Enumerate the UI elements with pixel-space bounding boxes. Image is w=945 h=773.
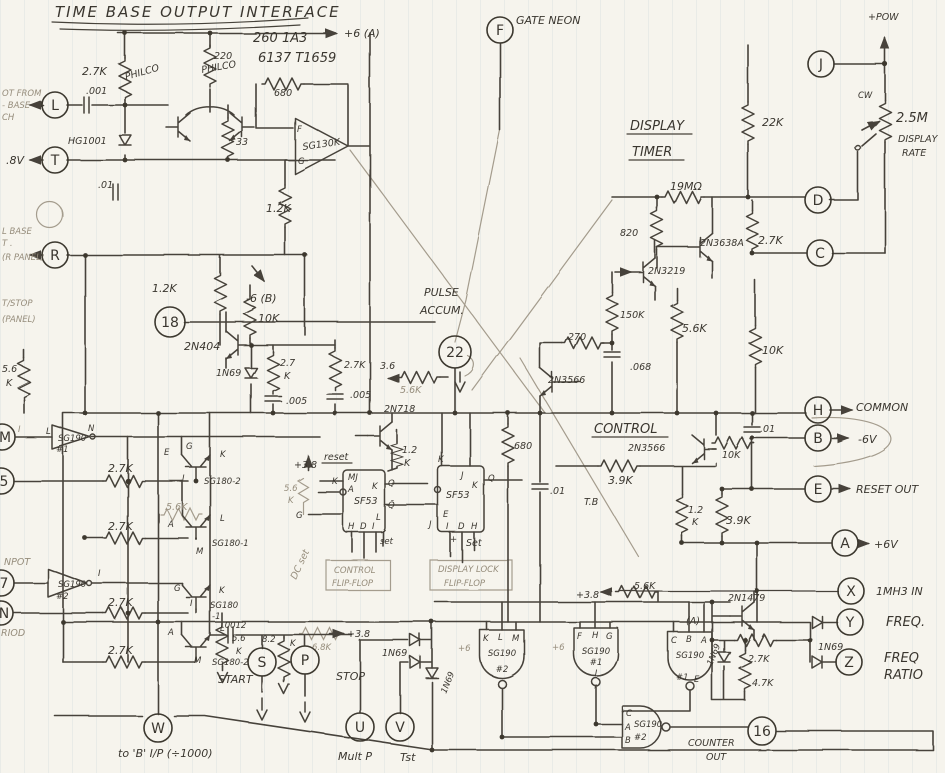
section-control: CONTROL — [594, 422, 657, 437]
terminal-B-label: B — [813, 431, 823, 447]
q-2n404: 2N404 — [184, 340, 220, 353]
gate-neon-label: GATE NEON — [516, 14, 580, 27]
terminal-P: P — [291, 646, 319, 674]
pot-2.5m: 2.5M — [896, 111, 928, 126]
q-2n718: 2N718 — [384, 404, 415, 415]
r-1.2k-b: 1.2K — [152, 282, 177, 295]
terminal-A-label: A — [840, 536, 850, 552]
display-timer-2: TIMER — [632, 145, 672, 160]
note-to-b: to 'B' I/P (÷1000) — [118, 747, 213, 760]
terminal-N: N — [0, 601, 13, 625]
gate1-p6: +6 — [458, 644, 471, 654]
ff1-pin-i: I — [372, 522, 375, 532]
wiring — [14, 33, 933, 750]
tag-a: (A) — [686, 616, 700, 627]
terminal-U-label: U — [355, 720, 365, 736]
gate4-name: SG190 — [634, 720, 662, 730]
amp-pin-g: G — [298, 157, 305, 167]
d-1n69-d: 1N69 — [440, 670, 458, 695]
gate2-name: SG190 — [582, 647, 610, 657]
ff1-pin-qbar: Q̄ — [388, 499, 395, 511]
terminal-M-label: M — [0, 430, 11, 446]
r-2.7k-bt: 2.7K — [748, 654, 770, 665]
pot-cw: CW — [858, 91, 873, 101]
note-npot: NPOT — [4, 557, 31, 568]
terminal-P-label: P — [301, 653, 309, 669]
pin-g: G — [296, 511, 303, 521]
supply-plus6a: +6 (A) — [344, 27, 380, 40]
r-1.2-c: 1.2 — [688, 505, 703, 516]
caption-cff-1: CONTROL — [334, 566, 376, 576]
qa-pin-i: I — [182, 474, 185, 484]
terminal-7: 7 — [0, 570, 14, 596]
inv1-num: #1 — [56, 445, 69, 455]
ff1-pin-mj: MJ — [348, 473, 358, 483]
supply-p38-a: +3.8 — [294, 460, 317, 471]
qc-name: SG180 — [210, 601, 238, 611]
qc-pin-k: K — [219, 586, 226, 596]
note-rpanel-3: (R PANEL) — [2, 253, 44, 263]
ff1-pin-q: Q — [388, 479, 395, 489]
terminal-W: W — [144, 714, 172, 742]
gate4-pin2: A — [624, 723, 631, 733]
terminal-B: B — [805, 425, 831, 451]
ff2-pin-q: Q — [488, 474, 495, 484]
terminal-5: 5 — [0, 468, 14, 494]
label-reset: reset — [324, 452, 350, 463]
io-counter-1: COUNTER — [688, 738, 735, 749]
ff1-pin-d: D — [360, 522, 367, 532]
ff1-pin-a: A — [347, 485, 354, 495]
display-rate-2: RATE — [902, 148, 926, 159]
q-2n3566-b: 2N3566 — [628, 443, 665, 454]
inv1-pin-i: I — [18, 425, 21, 435]
r-3.9k-a: 3.9K — [608, 474, 633, 487]
c-01b: .01 — [760, 424, 775, 435]
r-2.7k-1: 2.7K — [108, 462, 133, 475]
r-5.6-ff1: 5.6 — [284, 484, 298, 494]
io-reset-out: RESET OUT — [856, 483, 919, 496]
io-counter-2: OUT — [706, 752, 727, 763]
r-6.8k: 6.8K — [312, 643, 333, 653]
r-1.2-a: 1.2 — [402, 445, 417, 456]
gate3-pin1: C — [671, 636, 677, 646]
c-001: .001 — [86, 86, 107, 97]
terminal-Y: Y — [837, 609, 863, 635]
r-5.6k-edge1: 5.6 — [2, 364, 17, 375]
r-2.7k-4: 2.7K — [108, 644, 133, 657]
r-1.2-b: K — [404, 458, 411, 469]
r-22k: 22K — [762, 116, 784, 129]
r-5.6k-a: 5.6K — [166, 502, 188, 513]
r-5.6k-b: 5.6K — [634, 581, 656, 592]
supply-pow: +POW — [868, 12, 899, 23]
gate2-pin3: G — [606, 632, 613, 642]
gate3-name: SG190 — [676, 651, 704, 661]
terminal-F-label: F — [496, 23, 504, 39]
gate1-pin3: M — [512, 634, 520, 644]
terminal-X-label: X — [846, 584, 856, 600]
amp-sg130k: SG130K — [302, 137, 342, 153]
v-0.8: .8V — [6, 154, 25, 167]
r-2.7-b2: K — [284, 371, 291, 382]
r-33: 33 — [236, 137, 248, 148]
terminal-V: V — [386, 713, 414, 741]
caption-cff-2: FLIP-FLOP — [332, 579, 374, 589]
terminal-M: M — [0, 424, 15, 450]
note-stop-1: T/STOP — [2, 299, 33, 309]
ff2-pin-d: D — [458, 522, 465, 532]
gate3-num: #1 — [676, 673, 689, 683]
terminal-Z: Z — [836, 649, 862, 675]
terminal-22-label: 22 — [446, 345, 464, 361]
qb-pin-l: L — [220, 514, 225, 524]
r-2.7k-top: 2.7K — [82, 65, 107, 78]
r-270: 270 — [568, 332, 586, 343]
note-rpanel-1: L BASE — [2, 227, 32, 237]
terminal-S: S — [248, 648, 276, 676]
qb-pin-m: M — [196, 547, 204, 557]
ff2-pin-k: K — [438, 455, 445, 465]
terminal-V-label: V — [395, 720, 405, 736]
ff2-pin-i: I — [446, 522, 449, 532]
label-multp: Mult P — [338, 750, 372, 763]
r-2.7k-3: 2.7K — [108, 596, 133, 609]
gate2-p6: +6 — [552, 643, 565, 653]
r-8.2-k: K — [290, 639, 297, 649]
qa-name: SG180-2 — [204, 477, 241, 487]
c-005a: .005 — [286, 396, 307, 407]
r-5.6k-pulse: 5.6K — [400, 385, 422, 396]
terminal-D-label: D — [813, 193, 824, 209]
r-5.6-gnd-1: 5.6 — [232, 634, 246, 644]
note-from-3: CH — [2, 113, 15, 123]
note-period: RIOD — [1, 628, 25, 639]
terminal-16: 16 — [748, 717, 776, 745]
inv1-pin-n: N — [88, 424, 95, 434]
qa-pin-g: G — [186, 442, 193, 452]
note-from-2: - BASE — [2, 101, 31, 111]
gate3-pin3: A — [700, 636, 707, 646]
note-stop-2: (PANEL) — [2, 315, 36, 325]
r-2.7k-2: 2.7K — [108, 520, 133, 533]
ff2-pin-h: H — [471, 522, 478, 532]
terminal-Y-label: Y — [845, 615, 855, 631]
terminal-H: H — [805, 397, 831, 423]
r-2.7k-pulse: 2.7K — [344, 360, 366, 371]
supply-neg6b: -6 (B) — [246, 292, 277, 305]
ff1-pin-l: L — [376, 513, 381, 523]
r-8.2: 8.2 — [262, 635, 276, 645]
terminal-T-label: T — [50, 153, 60, 169]
r-10k-a: 10K — [258, 312, 280, 325]
r-10k-c: 10K — [722, 450, 741, 461]
qa-pin-k: K — [220, 450, 227, 460]
d-1n69-c: 1N69 — [706, 642, 724, 667]
ff1-pin-h: H — [348, 522, 355, 532]
pulse-accum-2: ACCUM. — [419, 304, 464, 317]
terminal-Z-label: Z — [844, 655, 854, 671]
inv2-out-i: I — [98, 569, 101, 579]
qa-pin-e: E — [164, 448, 170, 458]
r-1.2k-amp: 1.2K — [266, 202, 291, 215]
terminal-W-label: W — [151, 721, 165, 737]
q-2n3638a: 2N3638A — [700, 238, 744, 249]
note-tb: T.B — [584, 497, 598, 508]
terminal-D: D — [805, 187, 831, 213]
terminal-U: U — [346, 713, 374, 741]
terminal-5-label: 5 — [0, 474, 8, 490]
c-0012: .0012 — [222, 621, 246, 631]
resistor — [103, 78, 776, 668]
d-hg1001: HG1001 — [68, 136, 107, 147]
labels: TIME BASE OUTPUT INTERFACE 260 1A3 6137 … — [1, 3, 939, 764]
amp-pin-f: F — [297, 125, 302, 135]
label-start: START — [218, 673, 254, 686]
terminal-16-label: 16 — [753, 724, 771, 740]
ff1-pin-k2: K — [372, 482, 379, 492]
qc-pin-i: I — [190, 599, 193, 609]
diode — [119, 135, 822, 678]
ff2-name: SF53 — [446, 490, 470, 501]
inv2-name: SG190 — [58, 580, 86, 590]
terminal-L: L — [42, 92, 68, 118]
ff1-set: set — [380, 537, 394, 547]
gate4-pin3: B — [625, 736, 631, 746]
gate3-pin2: B — [686, 635, 692, 645]
c-01a: .01 — [98, 180, 113, 191]
schematic-page: TIME BASE OUTPUT INTERFACE 260 1A3 6137 … — [0, 0, 945, 773]
r-680-top: 680 — [274, 88, 292, 99]
q-2n3219: 2N3219 — [648, 266, 685, 277]
terminal-E-label: E — [814, 482, 823, 498]
io-freq-ratio-1: FREQ — [884, 651, 919, 666]
r-19m: 19MΩ — [670, 180, 702, 193]
part-number-2: 6137 T1659 — [258, 51, 336, 66]
io-freq: FREQ. — [886, 615, 925, 630]
r-10k-b: 10K — [762, 344, 784, 357]
io-freq-ratio-2: RATIO — [884, 668, 923, 683]
schematic-canvas: TIME BASE OUTPUT INTERFACE 260 1A3 6137 … — [0, 0, 945, 773]
terminal-F: F — [487, 17, 513, 43]
r-2.7k-d: 2.7K — [758, 234, 783, 247]
terminal-E: E — [805, 476, 831, 502]
ff2-set: Set — [466, 538, 483, 549]
terminal-18: 18 — [155, 307, 185, 337]
io-common: COMMON — [856, 401, 908, 414]
q-2n1479: 2N1479 — [728, 593, 765, 604]
terminal-J: J — [808, 51, 834, 77]
r-5.6-gnd-2: K — [236, 647, 243, 657]
qd-name: SG180-2 — [212, 658, 249, 668]
terminal-T: T — [42, 147, 68, 173]
qb-name: SG180-1 — [212, 539, 249, 549]
ff2-pin-e: E — [443, 510, 449, 520]
inv1-pin-l: L — [46, 427, 51, 437]
terminal-18-label: 18 — [161, 315, 179, 331]
c-005b: .005 — [350, 390, 371, 401]
r-1.2-d: K — [692, 517, 699, 528]
r-3.9k-b: 3.9K — [726, 514, 751, 527]
note-from-1: OT FROM — [2, 89, 42, 99]
io-neg6v: -6V — [858, 433, 878, 446]
ff1-pin-k: K — [332, 477, 339, 487]
gate1-pin2: L — [498, 633, 503, 643]
part-number-1: 260 1A3 — [253, 31, 307, 46]
terminal-A: A — [832, 530, 858, 556]
c-01c: .01 — [550, 486, 565, 497]
r-5.6-ff2: K — [288, 496, 295, 506]
gate2-num: #1 — [590, 658, 603, 668]
ff1-name: SF53 — [354, 496, 378, 507]
display-timer-1: DISPLAY — [630, 119, 685, 134]
r-4.7k: 4.7K — [752, 678, 774, 689]
qc-pin-g: G — [174, 584, 181, 594]
terminal-7-label: 7 — [0, 576, 8, 592]
terminal-X: X — [838, 578, 864, 604]
r-150k: 150K — [620, 310, 645, 321]
d-1n69-a: 1N69 — [216, 368, 241, 379]
terminal-H-label: H — [813, 403, 824, 419]
inv1-name: SG190 — [58, 434, 86, 444]
val-3.6: 3.6 — [380, 361, 395, 372]
inv2-num: #2 — [56, 592, 69, 602]
ff2-plus: + — [450, 535, 457, 545]
capacitor — [84, 97, 760, 643]
r-820: 820 — [620, 228, 638, 239]
r-5.6k-tr: 5.6K — [682, 322, 707, 335]
terminal-C: C — [807, 240, 833, 266]
ff2-pin-j2: J — [427, 520, 432, 530]
note-rpanel-2: T . — [2, 239, 13, 249]
gate1-pin1: K — [483, 634, 490, 644]
io-1mhz-in: 1MH3 IN — [876, 585, 923, 598]
gate1-name: SG190 — [488, 649, 516, 659]
terminal-S-label: S — [258, 655, 267, 671]
gate3-out: E — [694, 675, 700, 685]
c-068: .068 — [630, 362, 651, 373]
supply-p38-c: +3.8 — [347, 629, 370, 640]
display-rate-1: DISPLAY — [898, 134, 939, 145]
qd-pin-a: A — [167, 628, 174, 638]
pulse-accum-1: PULSE — [424, 286, 459, 299]
qb-pin-a: A — [167, 520, 174, 530]
gate1-num: #2 — [496, 665, 509, 675]
d-1n69-e: 1N69 — [818, 642, 843, 653]
switch — [856, 146, 861, 151]
qd-pin-m: M — [194, 656, 202, 666]
ff2-pin-j: J — [459, 471, 464, 481]
terminal-C-label: C — [815, 246, 825, 262]
ff2-pin-k2: K — [472, 481, 479, 491]
terminal-L-label: L — [51, 98, 59, 114]
qc-suffix: -1 — [212, 612, 220, 622]
r-2.7-b1: 2.7 — [280, 358, 295, 369]
philco-1: PHILCO — [124, 62, 161, 82]
caption-dff-1: DISPLAY LOCK — [438, 565, 500, 575]
q-2n3566-a: 2N3566 — [548, 375, 585, 386]
terminal-R-label: R — [50, 248, 60, 264]
r-680-ff: 680 — [514, 441, 532, 452]
gate4-pin1: C — [626, 709, 632, 719]
gate2-pin1: F — [577, 632, 582, 642]
r-5.6k-edge2: K — [6, 378, 13, 389]
terminal-J-label: J — [818, 57, 823, 73]
io-plus6v: +6V — [874, 538, 899, 551]
terminal-R: R — [42, 242, 68, 268]
gate2-pin2: H — [592, 631, 599, 641]
gate4-num: #2 — [634, 733, 647, 743]
note-dc-set: DC set — [289, 547, 313, 581]
supply-p38-b: +3.8 — [576, 590, 599, 601]
label-stop: STOP — [336, 670, 365, 683]
terminal-N-label: N — [0, 606, 9, 622]
d-1n69-b: 1N69 — [382, 648, 407, 659]
caption-dff-2: FLIP-FLOP — [444, 579, 486, 589]
label-tst: Tst — [400, 751, 416, 764]
